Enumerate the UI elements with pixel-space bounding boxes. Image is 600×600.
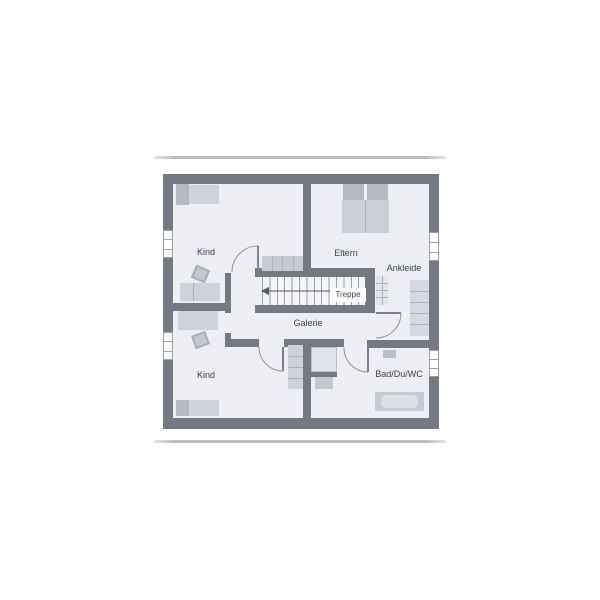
washbasin	[315, 377, 333, 389]
bed-pillow-left-eltern	[343, 184, 364, 200]
bathtub	[375, 392, 424, 411]
window-right-upper	[429, 232, 439, 261]
wardrobe-ankleide	[410, 280, 429, 336]
bed-eltern	[342, 200, 389, 233]
dresser-kind-top	[180, 283, 220, 301]
room-label-ankleide: Ankleide	[364, 263, 444, 274]
room-label-kind-top: Kind	[166, 247, 246, 258]
wall-center-pillar	[303, 339, 311, 418]
wall-galerie-south-a	[225, 339, 259, 347]
floor-plan-page: Kind Eltern Ankleide Treppe Galerie Kind…	[0, 0, 600, 600]
bed-kind-bottom	[189, 400, 219, 416]
wall-galerie-south-c	[311, 339, 344, 347]
wall-kind-rooms-divider	[173, 303, 231, 311]
bed-pillow-right-eltern	[367, 184, 388, 200]
room-label-galerie: Galerie	[268, 318, 348, 329]
wardrobe-kind-top	[262, 256, 303, 271]
bed-pillow-kind-bottom	[176, 400, 189, 416]
shower	[311, 347, 337, 372]
window-left-lower	[163, 332, 173, 360]
cabinet-ankleide-small	[376, 276, 388, 305]
room-label-treppe: Treppe	[330, 288, 366, 302]
room-label-bad: Bad/Du/WC	[359, 369, 439, 380]
wall-kind-eltern-divider	[303, 184, 311, 276]
top-separator-line	[154, 156, 446, 159]
room-label-eltern: Eltern	[306, 248, 386, 259]
room-label-kind-bottom: Kind	[166, 370, 246, 381]
shelf-kind-bottom	[288, 345, 303, 389]
bed-kind-top	[189, 185, 219, 204]
wall-bad-north	[367, 340, 429, 348]
desk-kind-bottom	[178, 311, 218, 330]
wall-stair-bottom	[255, 305, 375, 313]
bed-pillow-kind-top	[176, 184, 189, 205]
wc-toilet	[383, 350, 396, 358]
bottom-separator-line	[154, 440, 446, 443]
